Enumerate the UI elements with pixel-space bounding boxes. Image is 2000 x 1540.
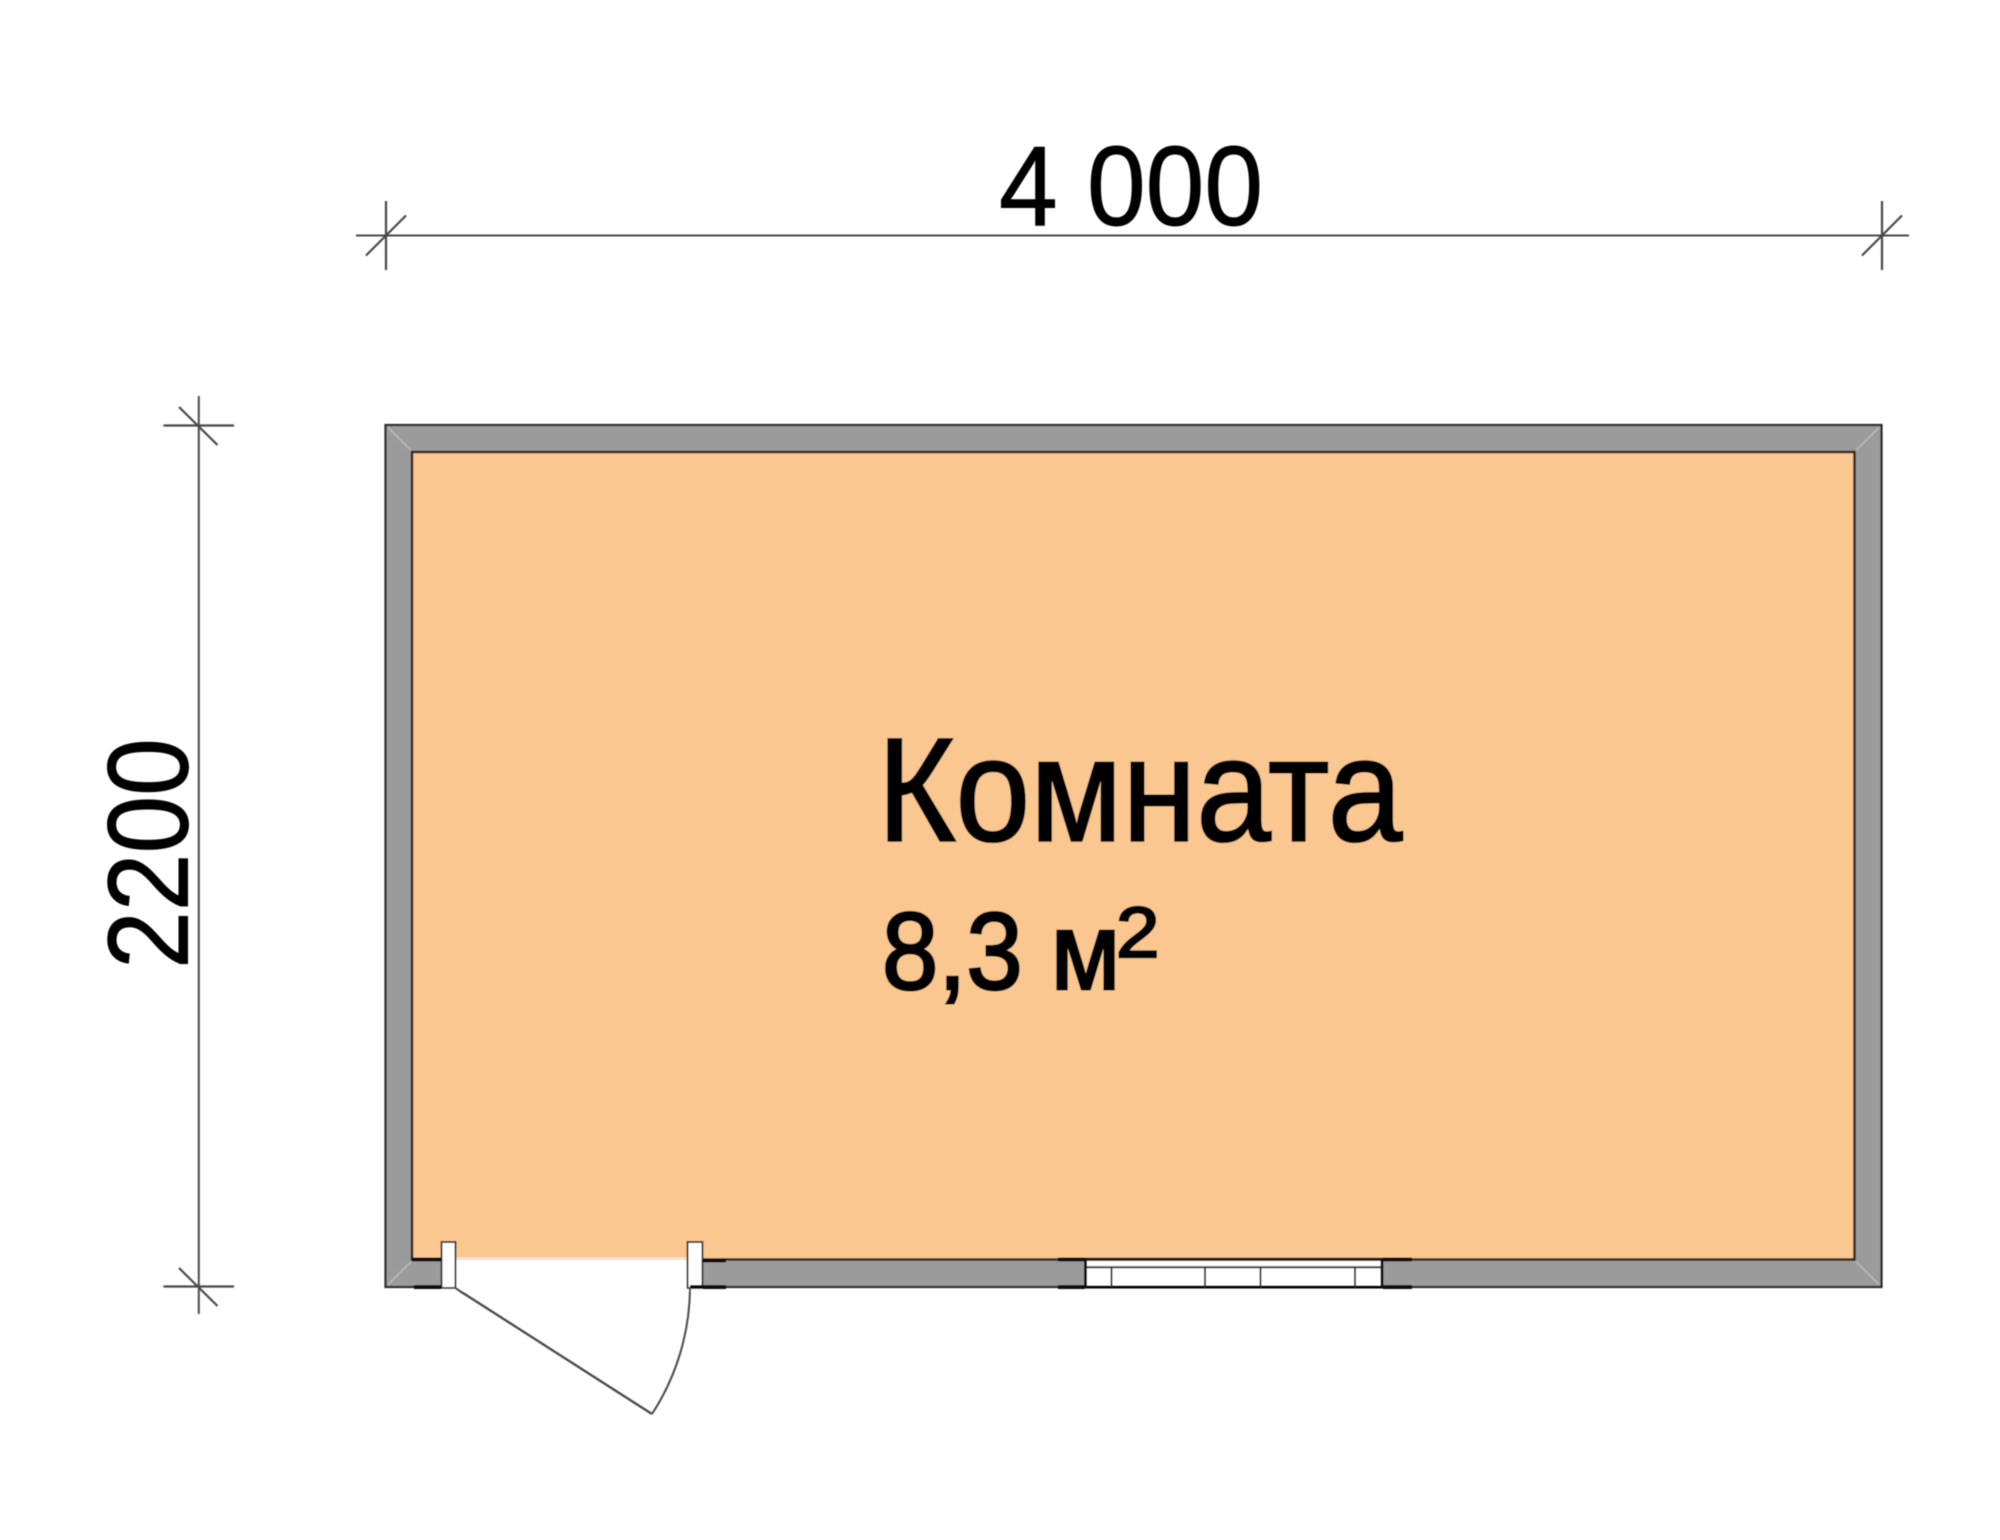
svg-text:Комната: Комната [878, 708, 1404, 872]
svg-text:2: 2 [1116, 892, 1159, 972]
svg-text:4 000: 4 000 [999, 124, 1263, 250]
svg-text:8,3 м: 8,3 м [882, 890, 1120, 1013]
svg-text:2200: 2200 [85, 738, 213, 969]
